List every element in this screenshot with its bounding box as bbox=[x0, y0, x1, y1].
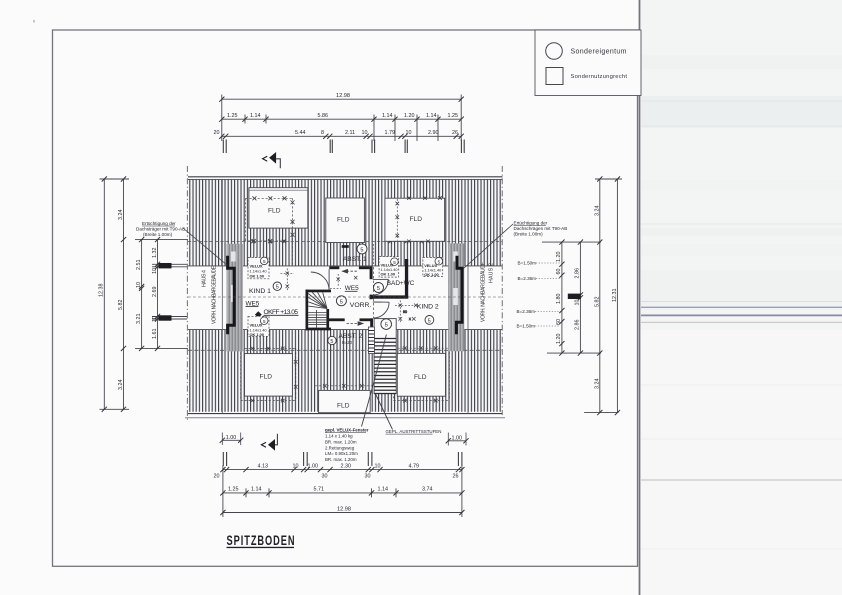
svg-text:(Breite 1.00m): (Breite 1.00m) bbox=[514, 232, 544, 237]
svg-text:B=1.50m: B=1.50m bbox=[518, 261, 537, 266]
svg-text:5.86: 5.86 bbox=[318, 113, 329, 119]
svg-text:(Breite 1.00m): (Breite 1.00m) bbox=[143, 232, 173, 237]
svg-text:Ertüchtigung der: Ertüchtigung der bbox=[514, 221, 548, 226]
svg-text:OK 1.00: OK 1.00 bbox=[250, 273, 265, 278]
svg-text:10: 10 bbox=[152, 316, 158, 322]
svg-text:60: 60 bbox=[556, 269, 562, 275]
svg-text:5.82: 5.82 bbox=[595, 297, 601, 308]
svg-text:VORR.: VORR. bbox=[350, 302, 372, 309]
svg-text:3.24: 3.24 bbox=[595, 379, 601, 390]
svg-text:2.90: 2.90 bbox=[428, 130, 439, 136]
svg-text:5: 5 bbox=[276, 285, 279, 291]
svg-text:20: 20 bbox=[214, 474, 220, 480]
svg-text:1.25: 1.25 bbox=[227, 113, 238, 119]
svg-text:10: 10 bbox=[293, 463, 299, 469]
svg-text:5: 5 bbox=[438, 259, 441, 264]
svg-text:GEPL. AUSTRITTSSTUFEN: GEPL. AUSTRITTSSTUFEN bbox=[386, 429, 442, 434]
svg-text:10: 10 bbox=[136, 282, 142, 288]
svg-text:1.00: 1.00 bbox=[226, 435, 237, 441]
svg-text:12.98: 12.98 bbox=[336, 93, 350, 99]
svg-text:1.14: 1.14 bbox=[426, 113, 437, 119]
svg-text:12.98: 12.98 bbox=[337, 506, 351, 512]
svg-text:SPITZBODEN: SPITZBODEN bbox=[227, 533, 296, 548]
svg-text:5: 5 bbox=[360, 247, 363, 253]
svg-text:1.25: 1.25 bbox=[228, 487, 239, 493]
svg-text:5: 5 bbox=[340, 299, 343, 305]
svg-text:10: 10 bbox=[362, 130, 368, 136]
svg-text:5: 5 bbox=[263, 319, 266, 324]
svg-text:Sondernutzungrecht: Sondernutzungrecht bbox=[571, 74, 628, 80]
svg-text:1.14: 1.14 bbox=[250, 113, 261, 119]
svg-text:Dachschrägen mit T90-AB: Dachschrägen mit T90-AB bbox=[514, 226, 568, 231]
svg-text:OKFF +13.05: OKFF +13.05 bbox=[264, 309, 299, 316]
svg-text:1.00: 1.00 bbox=[452, 435, 463, 441]
svg-text:HAUS 4: HAUS 4 bbox=[202, 270, 208, 287]
svg-text:B=2.36m: B=2.36m bbox=[517, 309, 536, 314]
svg-text:1.20: 1.20 bbox=[556, 334, 562, 345]
svg-text:1.14: 1.14 bbox=[382, 113, 393, 119]
svg-text:1.25: 1.25 bbox=[448, 113, 459, 119]
svg-text:B=20: B=20 bbox=[342, 340, 353, 345]
svg-text:FLD: FLD bbox=[337, 403, 350, 410]
svg-text:20: 20 bbox=[214, 130, 220, 136]
svg-text:3.24: 3.24 bbox=[595, 206, 601, 217]
svg-text:30: 30 bbox=[322, 474, 328, 480]
svg-text:10: 10 bbox=[406, 130, 412, 136]
svg-text:5.82: 5.82 bbox=[118, 300, 124, 311]
svg-text:Ertüchtigung der: Ertüchtigung der bbox=[142, 221, 176, 226]
svg-text:12.38: 12.38 bbox=[99, 284, 105, 298]
svg-text:VORH. NACHBARGEBÄUDE: VORH. NACHBARGEBÄUDE bbox=[480, 261, 487, 322]
svg-text:10: 10 bbox=[575, 300, 581, 306]
svg-text:2.Rettungsweg: 2.Rettungsweg bbox=[325, 445, 355, 450]
svg-text:B=2.36m: B=2.36m bbox=[518, 276, 537, 281]
svg-text:2.86: 2.86 bbox=[575, 268, 581, 279]
svg-text:2.51: 2.51 bbox=[136, 260, 142, 271]
svg-text:1.14: 1.14 bbox=[251, 487, 262, 493]
svg-text:FLD: FLD bbox=[260, 374, 273, 381]
svg-text:60: 60 bbox=[556, 319, 562, 325]
svg-text:5: 5 bbox=[330, 339, 333, 345]
svg-text:FLD: FLD bbox=[410, 216, 423, 223]
svg-text:1.79: 1.79 bbox=[385, 130, 396, 136]
svg-text:x: x bbox=[409, 317, 411, 321]
svg-text:Dachsträger mit T90-AB: Dachsträger mit T90-AB bbox=[136, 227, 185, 232]
svg-text:gepl. VELUX-Fenster: gepl. VELUX-Fenster bbox=[325, 427, 369, 432]
svg-text:2.30: 2.30 bbox=[341, 463, 352, 469]
svg-text:3.24: 3.24 bbox=[118, 210, 124, 221]
svg-text:1.20: 1.20 bbox=[556, 252, 562, 263]
svg-text:3.24: 3.24 bbox=[118, 380, 124, 391]
svg-text:KIND 1: KIND 1 bbox=[249, 288, 271, 295]
svg-text:30: 30 bbox=[365, 474, 371, 480]
svg-text:2.86: 2.86 bbox=[575, 320, 581, 331]
svg-text:26: 26 bbox=[453, 474, 459, 480]
svg-text:ABST. 2: ABST. 2 bbox=[339, 333, 363, 340]
svg-text:5: 5 bbox=[263, 259, 266, 264]
svg-text:5: 5 bbox=[377, 286, 380, 292]
svg-text:OK 1.00: OK 1.00 bbox=[381, 272, 396, 277]
svg-text:BAD+WC: BAD+WC bbox=[387, 280, 415, 287]
svg-text:HAUS 2: HAUS 2 bbox=[489, 263, 495, 283]
svg-text:26: 26 bbox=[452, 130, 458, 136]
svg-text:8: 8 bbox=[321, 130, 324, 136]
svg-text:1.00: 1.00 bbox=[308, 463, 319, 469]
svg-text:3.21: 3.21 bbox=[136, 314, 142, 325]
svg-text:Sondereigentum: Sondereigentum bbox=[571, 49, 627, 56]
svg-text:1.61: 1.61 bbox=[152, 329, 158, 340]
svg-text:12.31: 12.31 bbox=[612, 289, 618, 303]
svg-text:5: 5 bbox=[428, 318, 431, 324]
svg-text:FLD: FLD bbox=[337, 217, 350, 224]
svg-text:2.11: 2.11 bbox=[345, 130, 355, 136]
svg-text:5: 5 bbox=[393, 260, 396, 265]
svg-text:2.69: 2.69 bbox=[152, 287, 158, 298]
svg-text:1.20: 1.20 bbox=[404, 113, 415, 119]
svg-text:OK 1.00: OK 1.00 bbox=[424, 272, 439, 277]
svg-text:BR. max. 1.20m: BR. max. 1.20m bbox=[325, 440, 357, 445]
svg-text:1.14 x 1.40 kg: 1.14 x 1.40 kg bbox=[325, 434, 353, 439]
svg-text:5: 5 bbox=[385, 323, 388, 329]
svg-text:LM= 0.90x1.20m: LM= 0.90x1.20m bbox=[325, 451, 358, 456]
svg-text:4.13: 4.13 bbox=[258, 463, 269, 469]
svg-text:4.79: 4.79 bbox=[409, 463, 420, 469]
svg-text:1.32: 1.32 bbox=[152, 248, 158, 259]
svg-text:1.14: 1.14 bbox=[378, 487, 389, 493]
svg-text:FLD: FLD bbox=[268, 208, 281, 215]
svg-text:10: 10 bbox=[375, 463, 381, 469]
svg-text:BR. max. 1.20m: BR. max. 1.20m bbox=[325, 457, 357, 462]
svg-text:3.74: 3.74 bbox=[422, 487, 433, 493]
svg-text:1.80: 1.80 bbox=[556, 294, 562, 305]
svg-text:ABST. 1: ABST. 1 bbox=[343, 256, 367, 263]
svg-text:KIND 2: KIND 2 bbox=[417, 304, 439, 311]
svg-text:5.44: 5.44 bbox=[295, 130, 306, 136]
svg-text:10: 10 bbox=[152, 268, 158, 274]
svg-text:B=1.50m: B=1.50m bbox=[517, 324, 536, 329]
svg-text:VORH. NACHBARGEBÄUDE: VORH. NACHBARGEBÄUDE bbox=[211, 265, 218, 324]
svg-text:FLD: FLD bbox=[414, 374, 427, 381]
svg-text:90: 90 bbox=[403, 310, 407, 314]
svg-text:OK 1.00: OK 1.00 bbox=[250, 332, 265, 337]
svg-text:5.71: 5.71 bbox=[314, 487, 325, 493]
